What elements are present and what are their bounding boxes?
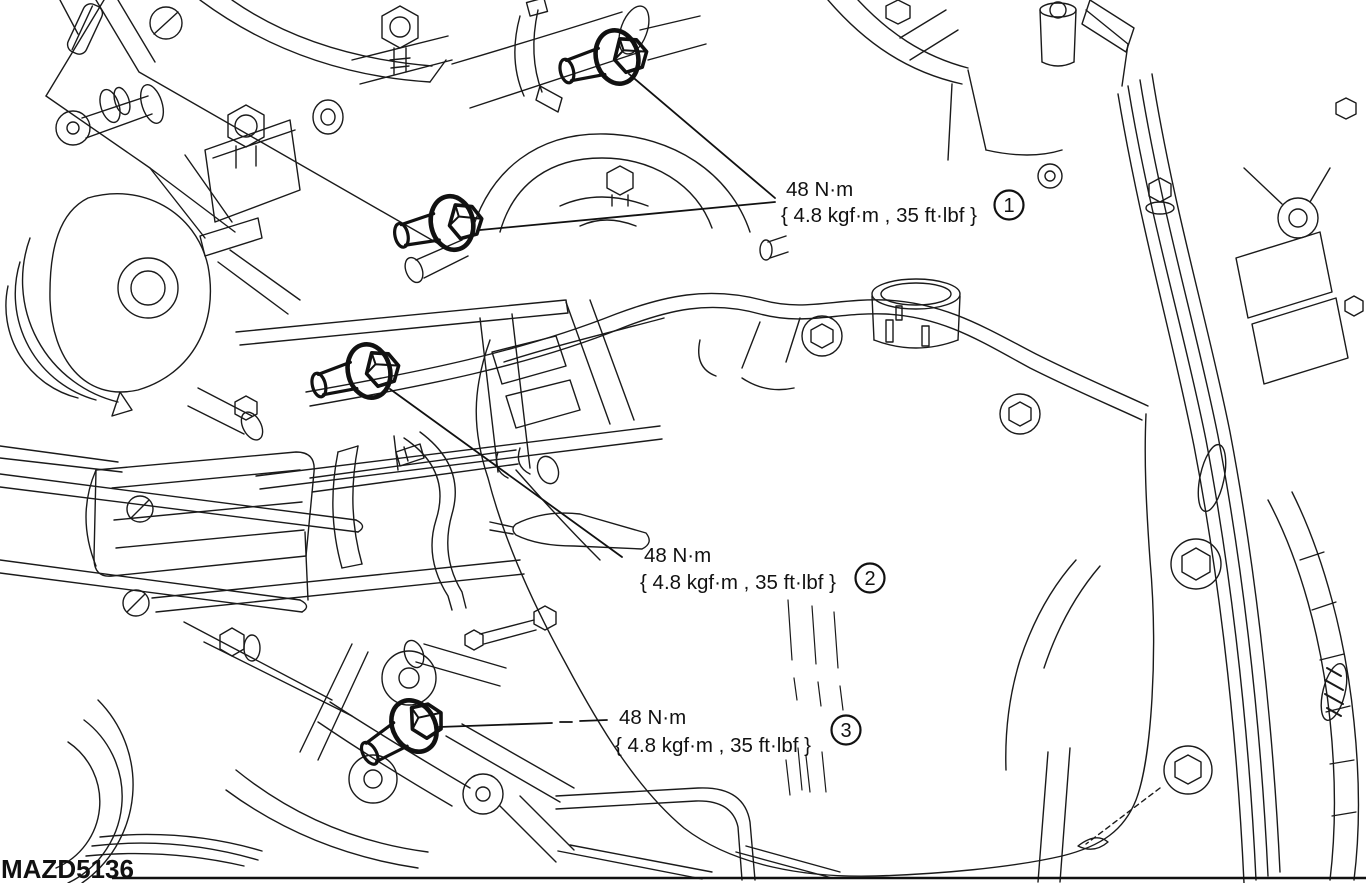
leader-callout-3 bbox=[439, 720, 607, 727]
engine-block-top bbox=[828, 0, 1134, 188]
torque-1-primary: 48 N·m bbox=[786, 178, 853, 201]
washer-discs bbox=[226, 651, 574, 868]
torque-1-secondary: { 4.8 kgf·m , 35 ft·lbf } bbox=[781, 204, 977, 227]
gear-housing-hump bbox=[402, 134, 788, 285]
lower-bracket-assembly bbox=[152, 560, 556, 760]
torque-2-secondary: { 4.8 kgf·m , 35 ft·lbf } bbox=[640, 571, 836, 594]
leader-callout-2 bbox=[390, 389, 622, 557]
torque-bolt-2 bbox=[306, 338, 405, 412]
leader-callout-1a bbox=[629, 74, 775, 198]
callout-1-number: 1 bbox=[1003, 195, 1014, 217]
leader-lines bbox=[390, 74, 775, 727]
transaxle-case bbox=[1006, 74, 1363, 883]
callout-2-number: 2 bbox=[864, 568, 875, 590]
torque-bolt-1a bbox=[554, 24, 653, 98]
highlighted-bolts bbox=[306, 24, 653, 779]
rail-fins bbox=[0, 436, 398, 612]
torque-labels: 48 N·m { 4.8 kgf·m , 35 ft·lbf } 48 N·m … bbox=[615, 178, 977, 757]
torque-bolt-3 bbox=[350, 688, 454, 779]
frame-beams bbox=[236, 300, 662, 489]
engine-torque-diagram: 48 N·m { 4.8 kgf·m , 35 ft·lbf } 48 N·m … bbox=[0, 0, 1366, 883]
engine-mount-plate bbox=[46, 0, 451, 251]
torque-2-primary: 48 N·m bbox=[644, 544, 711, 567]
callout-1-badge: 1 bbox=[995, 191, 1024, 220]
timing-cover-curves bbox=[200, 0, 446, 134]
callout-3-number: 3 bbox=[840, 720, 851, 742]
figure-canvas: 48 N·m { 4.8 kgf·m , 35 ft·lbf } 48 N·m … bbox=[0, 0, 1366, 883]
callout-3-badge: 3 bbox=[832, 716, 861, 745]
torque-3-primary: 48 N·m bbox=[619, 706, 686, 729]
torque-3-secondary: { 4.8 kgf·m , 35 ft·lbf } bbox=[615, 734, 811, 757]
mount-bracket-assembly bbox=[56, 6, 452, 314]
callout-2-badge: 2 bbox=[856, 564, 885, 593]
callout-badges: 1 2 3 bbox=[832, 191, 1024, 745]
water-pump-body bbox=[6, 194, 267, 444]
